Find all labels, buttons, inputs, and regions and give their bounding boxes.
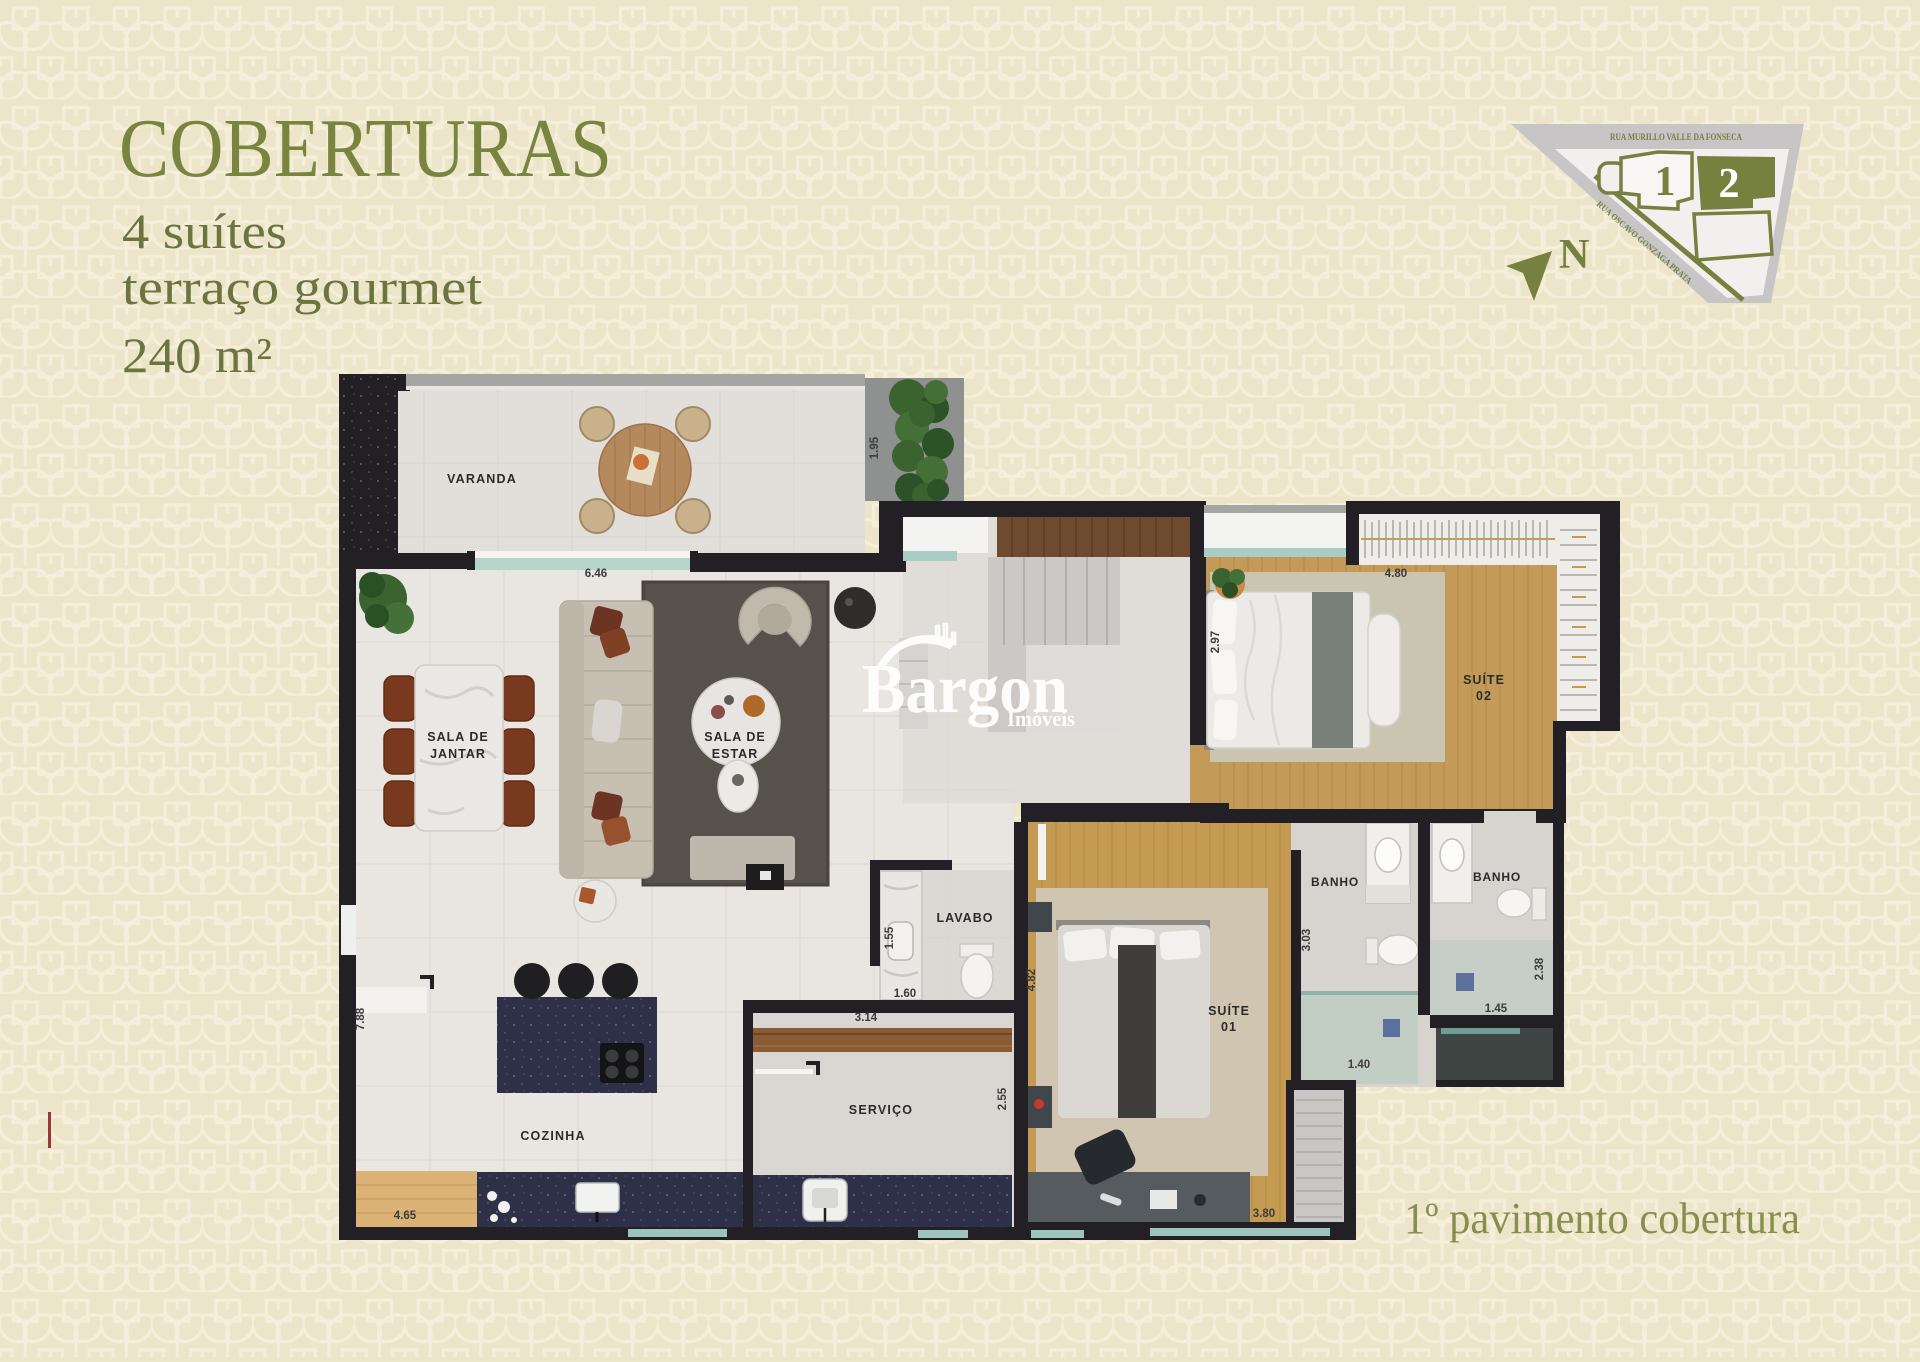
svg-text:4.65: 4.65 [394, 1210, 417, 1222]
svg-text:BANHO: BANHO [1311, 875, 1359, 889]
svg-text:2.97: 2.97 [1210, 631, 1222, 653]
svg-text:1.60: 1.60 [894, 988, 916, 1000]
svg-text:01: 01 [1221, 1020, 1237, 1034]
svg-text:1º pavimento cobertura: 1º pavimento cobertura [1404, 1194, 1800, 1243]
svg-text:3.03: 3.03 [1301, 929, 1313, 951]
svg-text:240 m²: 240 m² [122, 327, 272, 383]
svg-text:BANHO: BANHO [1473, 870, 1521, 884]
svg-text:1.45: 1.45 [1485, 1003, 1508, 1015]
svg-text:4 suítes: 4 suítes [122, 203, 287, 259]
svg-text:terraço gourmet: terraço gourmet [122, 259, 482, 315]
svg-text:Imóveis: Imóveis [1007, 706, 1075, 731]
svg-text:3.80: 3.80 [1253, 1208, 1275, 1220]
svg-text:LAVABO: LAVABO [937, 911, 994, 925]
svg-text:SERVIÇO: SERVIÇO [849, 1103, 913, 1117]
svg-text:1.95: 1.95 [869, 436, 881, 459]
svg-text:02: 02 [1476, 689, 1492, 703]
svg-text:JANTAR: JANTAR [430, 747, 486, 761]
svg-text:COBERTURAS: COBERTURAS [119, 102, 612, 195]
svg-text:SUÍTE: SUÍTE [1463, 672, 1505, 687]
svg-text:RUA MURILLO VALLE DA FONSECA: RUA MURILLO VALLE DA FONSECA [1610, 132, 1742, 142]
svg-text:4.82: 4.82 [1026, 969, 1038, 991]
svg-text:COZINHA: COZINHA [520, 1129, 585, 1143]
svg-text:SALA DE: SALA DE [427, 730, 488, 744]
svg-text:VARANDA: VARANDA [447, 472, 517, 486]
svg-text:4.80: 4.80 [1385, 568, 1407, 580]
svg-text:3.14: 3.14 [855, 1012, 878, 1024]
svg-text:1.55: 1.55 [884, 926, 896, 949]
svg-text:1.40: 1.40 [1348, 1059, 1370, 1071]
svg-text:SUÍTE: SUÍTE [1208, 1003, 1250, 1018]
svg-text:2.38: 2.38 [1534, 957, 1546, 980]
svg-text:ESTAR: ESTAR [712, 747, 758, 761]
svg-text:2.55: 2.55 [997, 1087, 1009, 1110]
svg-text:1: 1 [1655, 159, 1676, 205]
svg-text:N: N [1559, 232, 1589, 278]
svg-text:SALA DE: SALA DE [704, 730, 765, 744]
svg-text:6.46: 6.46 [585, 568, 607, 580]
svg-text:2: 2 [1719, 161, 1740, 207]
svg-text:7.88: 7.88 [355, 1007, 367, 1030]
